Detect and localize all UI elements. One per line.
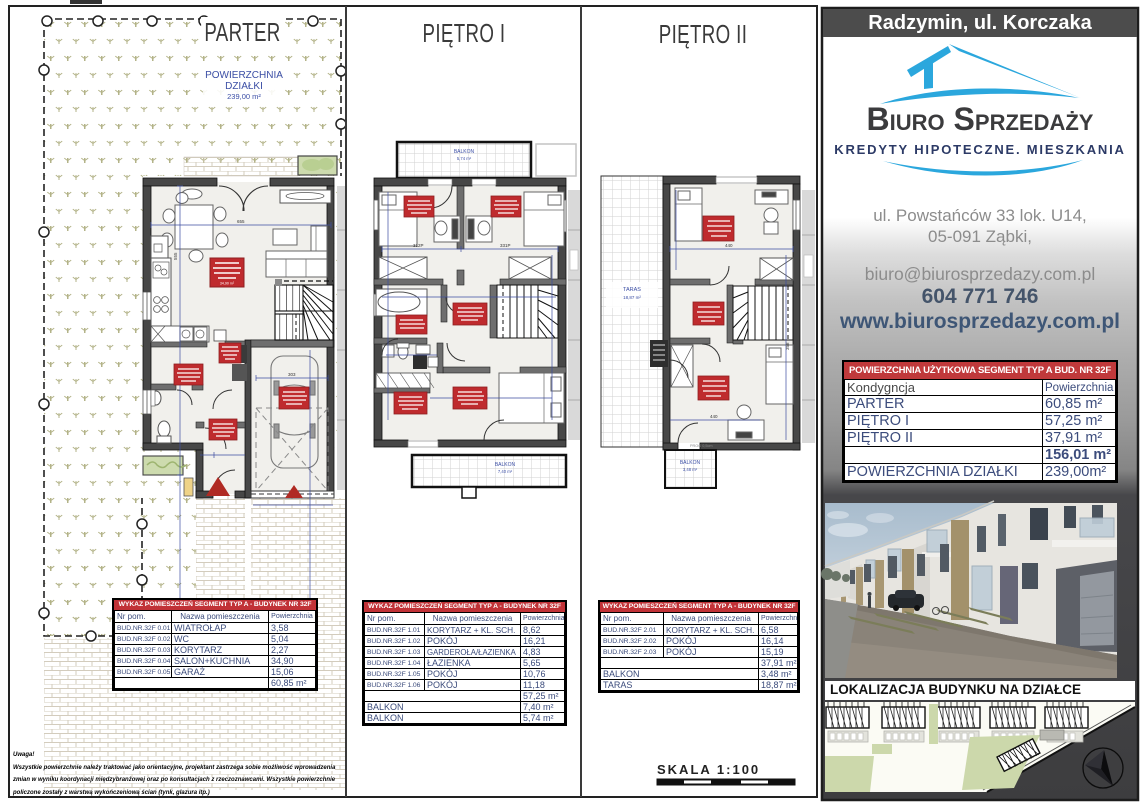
svg-text:PROG 0,5cm: PROG 0,5cm (690, 444, 713, 448)
svg-text:303: 303 (288, 372, 296, 377)
svg-text:655: 655 (237, 219, 245, 224)
svg-text:BALKON: BALKON (495, 462, 516, 468)
svg-text:TARAS: TARAS (623, 287, 641, 293)
svg-text:239,00 m²: 239,00 m² (227, 92, 261, 101)
svg-text:5,74 m²: 5,74 m² (457, 156, 472, 161)
svg-text:358: 358 (785, 342, 790, 350)
svg-text:440: 440 (710, 414, 718, 419)
svg-text:331P: 331P (500, 243, 511, 248)
svg-text:18,87 m²: 18,87 m² (623, 295, 641, 300)
svg-text:7,40 m²: 7,40 m² (498, 469, 513, 474)
svg-text:555: 555 (173, 252, 178, 260)
svg-text:BALKON: BALKON (680, 460, 701, 466)
svg-text:440: 440 (725, 243, 733, 248)
svg-text:312P: 312P (413, 243, 424, 248)
svg-text:3,48 m²: 3,48 m² (683, 467, 698, 472)
svg-text:POWIERZCHNIA: POWIERZCHNIA (205, 70, 283, 81)
svg-text:BALKON: BALKON (454, 149, 475, 155)
svg-text:DZIAŁKI: DZIAŁKI (225, 81, 263, 92)
svg-text:34,90 m²: 34,90 m² (220, 282, 235, 286)
